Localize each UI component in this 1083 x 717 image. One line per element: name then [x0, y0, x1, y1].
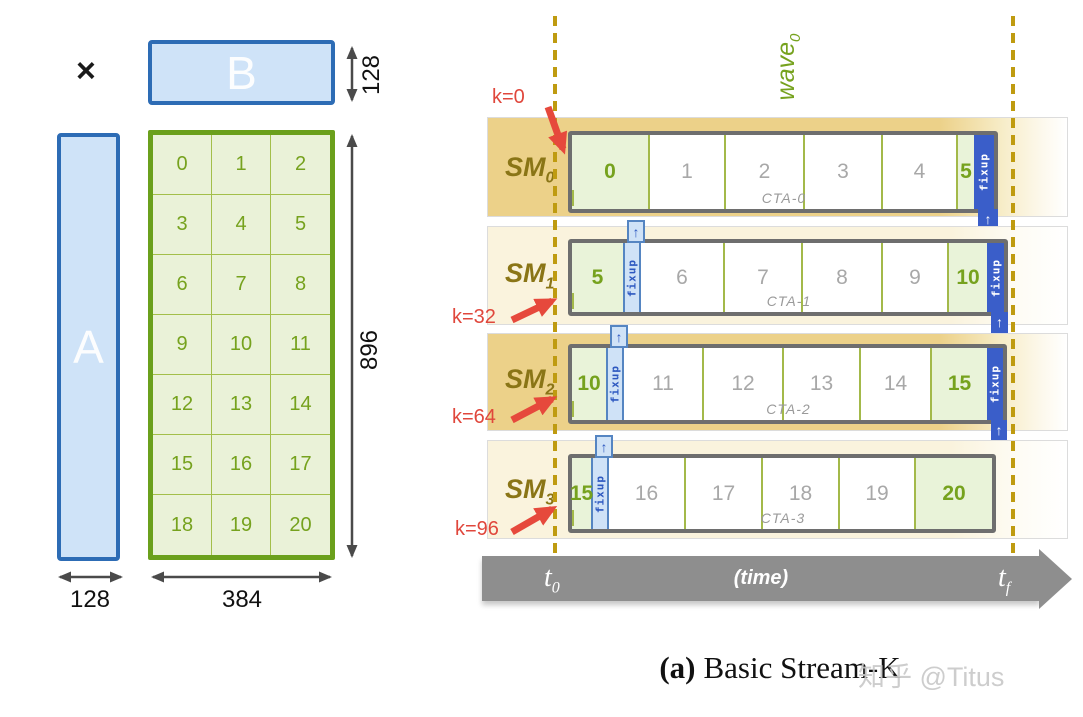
- tile-number: 10: [956, 266, 979, 290]
- time-axis-arrow: t0 (time) tf: [482, 556, 1040, 601]
- wave-label-sub: 0: [787, 34, 804, 42]
- matrix-a-width-dim: 128: [60, 586, 120, 614]
- tile-number: 18: [789, 482, 812, 506]
- sm-label-base: SM: [505, 474, 546, 504]
- grid-tile-6: 6: [153, 255, 212, 315]
- tile-number: 8: [836, 266, 848, 290]
- grid-tile-3: 3: [153, 195, 212, 255]
- sm-label-0: SM0: [505, 152, 554, 187]
- tile-number: 15: [948, 372, 971, 396]
- fixup-up-arrow-icon: ↑: [595, 435, 613, 458]
- sm-label-2: SM2: [505, 364, 554, 399]
- output-tile-grid: 01234567891011121314151617181920: [148, 130, 335, 560]
- grid-tile-11: 11: [271, 315, 330, 375]
- grid-tile-8: 8: [271, 255, 330, 315]
- tile-number: 11: [652, 372, 674, 396]
- grid-tile-2: 2: [271, 135, 330, 195]
- time-end-base: t: [998, 562, 1006, 593]
- grid-tile-18: 18: [153, 495, 212, 555]
- sm-label-1: SM1: [505, 258, 554, 293]
- tile-number: 16: [635, 482, 658, 506]
- wave-end-line: [1011, 16, 1015, 556]
- tile-number: 15: [570, 482, 593, 506]
- sm-row-1: SM15fixup678910fixupCTA-1↑↑: [487, 226, 1068, 325]
- fixup-up-arrow-icon: ↑: [610, 325, 628, 348]
- wave-label-base: wave: [772, 42, 800, 100]
- tile-number: 5: [960, 160, 972, 184]
- grid-height-dim: 896: [356, 320, 384, 380]
- matrix-b-label: B: [226, 46, 257, 100]
- fixup-label: fixup: [989, 365, 1002, 403]
- tile-number: 2: [759, 160, 771, 184]
- tile-number: 10: [577, 372, 600, 396]
- grid-tile-10: 10: [212, 315, 271, 375]
- tile-number: 19: [865, 482, 888, 506]
- grid-width-dim: 384: [192, 586, 292, 614]
- time-end-sub: f: [1006, 580, 1010, 597]
- tile-number: 9: [909, 266, 921, 290]
- time-mid-label: (time): [482, 567, 1040, 590]
- fixup-label: fixup: [978, 153, 991, 191]
- wave-start-line: [553, 16, 557, 556]
- cta-label-1: CTA-1: [572, 293, 1004, 309]
- time-end-label: tf: [998, 562, 1010, 598]
- cta-label-2: CTA-2: [572, 401, 1003, 417]
- matrix-a-label: A: [73, 320, 104, 374]
- tile-number: 4: [914, 160, 926, 184]
- tile-number: 1: [681, 160, 693, 184]
- fixup-up-arrow-icon: ↑: [991, 312, 1008, 335]
- tile-number: 3: [837, 160, 849, 184]
- matrix-b: B: [148, 40, 335, 105]
- time-axis-arrowhead-icon: [1039, 549, 1072, 609]
- tile-number: 7: [757, 266, 769, 290]
- grid-tile-19: 19: [212, 495, 271, 555]
- k-offset-label-2: k=64: [452, 406, 496, 429]
- grid-tile-7: 7: [212, 255, 271, 315]
- cta-label-0: CTA-0: [572, 190, 994, 206]
- grid-tile-16: 16: [212, 435, 271, 495]
- sm-label-base: SM: [505, 364, 546, 394]
- k-offset-label-0: k=0: [492, 86, 525, 109]
- tile-number: 20: [942, 482, 965, 506]
- sm-row-0: SM0012345fixupCTA-0↑: [487, 117, 1068, 217]
- grid-tile-1: 1: [212, 135, 271, 195]
- sm-label-base: SM: [505, 258, 546, 288]
- grid-tile-17: 17: [271, 435, 330, 495]
- tile-number: 14: [884, 372, 907, 396]
- watermark: 知乎 @Titus: [858, 655, 1004, 694]
- k-offset-label-3: k=96: [455, 518, 499, 541]
- fixup-label: fixup: [626, 258, 639, 296]
- tile-number: 5: [592, 266, 604, 290]
- tile-number: 0: [604, 160, 616, 184]
- fixup-label: fixup: [989, 258, 1002, 296]
- wave-label: wave0: [772, 27, 802, 107]
- grid-tile-13: 13: [212, 375, 271, 435]
- grid-tile-14: 14: [271, 375, 330, 435]
- caption-index: (a): [659, 650, 695, 685]
- tile-number: 6: [676, 266, 688, 290]
- cta-bar-1: 5fixup678910fixupCTA-1↑↑: [568, 239, 1008, 316]
- cta-bar-0: 012345fixupCTA-0↑: [568, 131, 998, 213]
- fixup-label: fixup: [609, 365, 622, 403]
- figure-canvas: × B A 01234567891011121314151617181920 1…: [0, 0, 1083, 717]
- tile-number: 17: [712, 482, 735, 506]
- sm-label-3: SM3: [505, 474, 554, 509]
- matrix-b-height-dim: 128: [358, 45, 386, 105]
- grid-tile-15: 15: [153, 435, 212, 495]
- k-offset-label-1: k=32: [452, 306, 496, 329]
- sm-row-2: SM210fixup1112131415fixupCTA-2↑↑: [487, 333, 1068, 431]
- grid-tile-0: 0: [153, 135, 212, 195]
- sm-label-base: SM: [505, 152, 546, 182]
- grid-tile-5: 5: [271, 195, 330, 255]
- grid-tile-4: 4: [212, 195, 271, 255]
- grid-tile-12: 12: [153, 375, 212, 435]
- grid-tile-20: 20: [271, 495, 330, 555]
- tile-number: 12: [731, 372, 754, 396]
- matrix-a: A: [57, 133, 120, 561]
- sm-row-3: SM315fixup1617181920CTA-3↑: [487, 440, 1068, 539]
- fixup-up-arrow-icon: ↑: [627, 220, 645, 243]
- fixup-label: fixup: [594, 474, 607, 512]
- cta-bar-3: 15fixup1617181920CTA-3↑: [568, 454, 996, 533]
- cta-bar-2: 10fixup1112131415fixupCTA-2↑↑: [568, 344, 1007, 424]
- multiply-symbol: ×: [76, 52, 96, 91]
- tile-number: 13: [810, 372, 833, 396]
- cta-label-3: CTA-3: [572, 510, 992, 526]
- grid-tile-9: 9: [153, 315, 212, 375]
